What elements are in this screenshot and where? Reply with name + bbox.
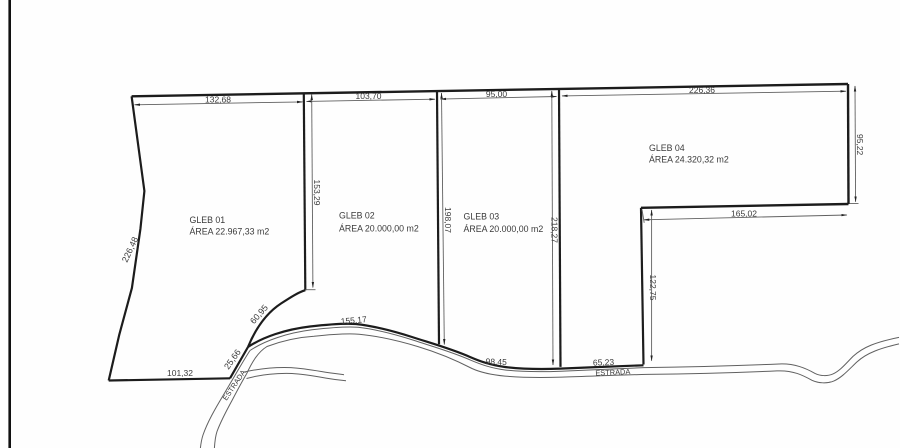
svg-text:122,75: 122,75 <box>648 275 658 301</box>
svg-text:98,45: 98,45 <box>485 356 507 367</box>
svg-text:218,27: 218,27 <box>550 217 560 243</box>
svg-text:165,02: 165,02 <box>731 208 757 218</box>
svg-text:95,00: 95,00 <box>486 89 508 99</box>
svg-text:GLEB 02: GLEB 02 <box>339 211 375 221</box>
svg-text:153,29: 153,29 <box>312 180 322 206</box>
svg-text:GLEB 01: GLEB 01 <box>190 215 226 225</box>
svg-text:95,22: 95,22 <box>855 134 865 156</box>
svg-text:ÁREA 24.320,32 m2: ÁREA 24.320,32 m2 <box>649 155 729 165</box>
svg-text:103,70: 103,70 <box>356 91 382 101</box>
svg-text:GLEB 03: GLEB 03 <box>464 212 500 222</box>
svg-text:GLEB 04: GLEB 04 <box>649 143 685 153</box>
svg-text:ESTRADA: ESTRADA <box>595 367 630 378</box>
svg-text:198,07: 198,07 <box>443 207 453 233</box>
svg-text:65,23: 65,23 <box>593 357 615 368</box>
svg-text:101,32: 101,32 <box>167 368 193 378</box>
svg-text:ÁREA 20.000,00 m2: ÁREA 20.000,00 m2 <box>464 224 544 234</box>
svg-text:ÁREA 20.000,00 m2: ÁREA 20.000,00 m2 <box>339 224 419 234</box>
svg-text:226,36: 226,36 <box>689 85 715 95</box>
svg-text:ÁREA 22.967,33 m2: ÁREA 22.967,33 m2 <box>190 226 270 236</box>
svg-text:132,68: 132,68 <box>205 95 231 105</box>
